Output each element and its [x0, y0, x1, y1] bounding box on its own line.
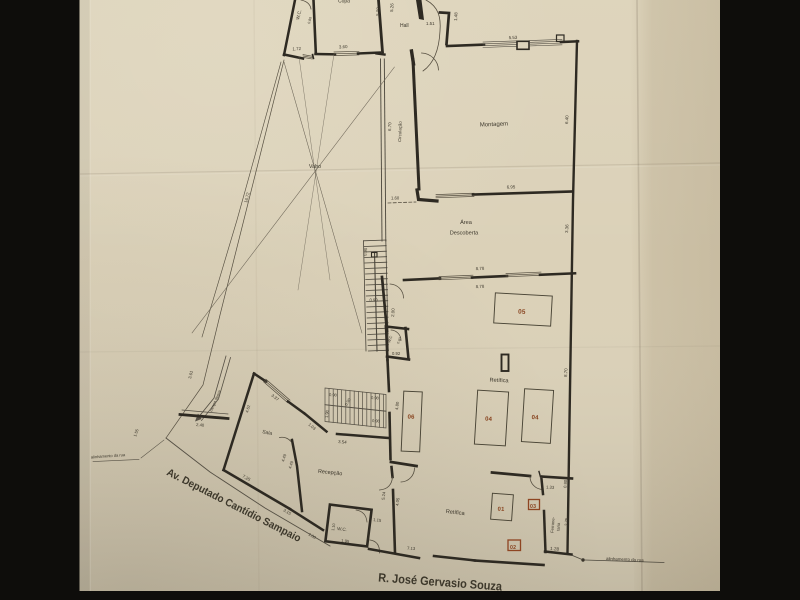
svg-text:1.95: 1.95	[341, 538, 350, 544]
svg-text:1.51: 1.51	[426, 21, 435, 26]
svg-text:2.75: 2.75	[564, 517, 570, 526]
svg-text:Circulação: Circulação	[397, 121, 403, 142]
svg-text:1.15: 1.15	[373, 517, 382, 523]
svg-text:Vaho: Vaho	[309, 164, 321, 170]
svg-text:5.00: 5.00	[375, 7, 381, 16]
svg-text:3.36: 3.36	[564, 224, 569, 233]
svg-text:0.90: 0.90	[371, 395, 380, 401]
svg-text:5.53: 5.53	[509, 35, 518, 40]
svg-text:2.40: 2.40	[196, 422, 205, 428]
svg-text:1.28: 1.28	[550, 546, 560, 552]
svg-text:2.00: 2.00	[390, 308, 396, 318]
svg-text:4.05: 4.05	[395, 497, 401, 506]
svg-text:1.48: 1.48	[453, 12, 459, 21]
svg-text:04: 04	[485, 417, 493, 423]
svg-text:6.40: 6.40	[564, 115, 569, 124]
svg-text:3.54: 3.54	[338, 439, 348, 445]
svg-text:5.26: 5.26	[389, 3, 395, 12]
svg-text:6.70: 6.70	[387, 122, 392, 131]
svg-text:1.90: 1.90	[324, 409, 330, 418]
svg-text:1.60: 1.60	[391, 196, 400, 201]
svg-text:0.90: 0.90	[329, 392, 338, 398]
svg-text:Área: Área	[460, 219, 473, 226]
svg-text:Retífica: Retífica	[489, 378, 509, 385]
svg-text:6.95: 6.95	[507, 184, 516, 189]
svg-text:Hall: Hall	[400, 23, 409, 29]
svg-text:1.72: 1.72	[292, 46, 301, 52]
svg-text:01: 01	[497, 507, 505, 514]
svg-text:7.13: 7.13	[407, 546, 416, 552]
svg-text:taria: taria	[556, 522, 562, 531]
svg-text:0.90: 0.90	[363, 247, 369, 256]
svg-text:4.80: 4.80	[394, 401, 400, 410]
svg-text:3.60: 3.60	[339, 44, 348, 49]
svg-text:8.78: 8.78	[476, 266, 485, 271]
svg-text:04: 04	[531, 415, 539, 421]
svg-text:0.80: 0.80	[563, 479, 569, 488]
svg-text:0.90: 0.90	[370, 298, 379, 303]
svg-text:03: 03	[530, 504, 536, 510]
svg-text:02: 02	[510, 545, 516, 551]
svg-text:8.78: 8.78	[476, 284, 485, 289]
svg-text:06: 06	[407, 415, 415, 421]
svg-text:5.24: 5.24	[381, 491, 387, 500]
svg-text:Montagem: Montagem	[480, 122, 509, 129]
svg-text:0.90: 0.90	[372, 418, 381, 424]
svg-text:8.70: 8.70	[563, 368, 568, 377]
svg-text:Copa: Copa	[338, 0, 350, 5]
svg-text:0.92: 0.92	[392, 351, 401, 356]
svg-text:1.33: 1.33	[546, 485, 555, 490]
svg-text:05: 05	[518, 309, 526, 316]
svg-text:Descoberta: Descoberta	[450, 231, 479, 237]
